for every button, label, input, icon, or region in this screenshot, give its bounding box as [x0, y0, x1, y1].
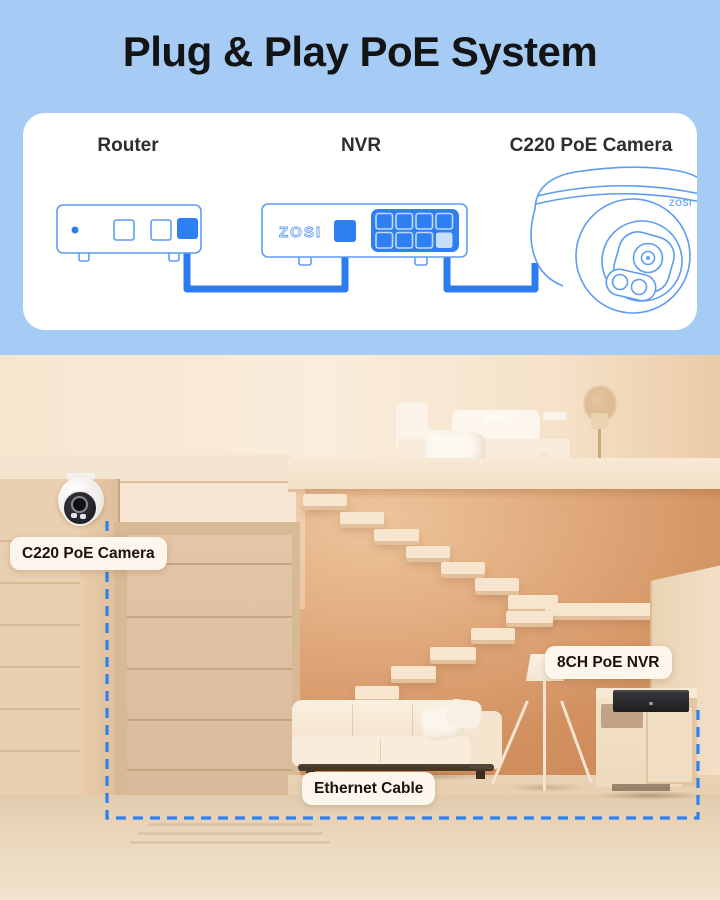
header: Plug & Play PoE System Router NVR C220 P… — [0, 0, 720, 355]
nvr-active-port — [436, 233, 453, 249]
nvr-illustration: ZOSI — [262, 204, 467, 265]
zosi-logo: ZOSI — [279, 224, 322, 241]
connection-diagram-card: Router NVR C220 PoE Camera — [23, 113, 697, 330]
poe-system-infographic: Plug & Play PoE System Router NVR C220 P… — [0, 0, 720, 900]
page-title: Plug & Play PoE System — [0, 28, 720, 76]
nvr-uplink-port — [334, 220, 356, 242]
camera-illustration: ZOSI — [531, 167, 697, 313]
house-cutaway-scene: C220 PoE Camera 8CH PoE NVR Ethernet Cab… — [0, 355, 720, 900]
cable-route-overlay — [0, 355, 720, 900]
router-led — [72, 227, 79, 234]
router-lan-port — [177, 218, 198, 239]
cable-tag: Ethernet Cable — [302, 772, 435, 805]
camera-zosi-logo: ZOSI — [669, 198, 692, 208]
router-illustration — [57, 205, 201, 261]
camera-tag: C220 PoE Camera — [10, 537, 167, 570]
nvr-tag: 8CH PoE NVR — [545, 646, 672, 679]
connection-diagram: ZOSI — [23, 113, 697, 330]
